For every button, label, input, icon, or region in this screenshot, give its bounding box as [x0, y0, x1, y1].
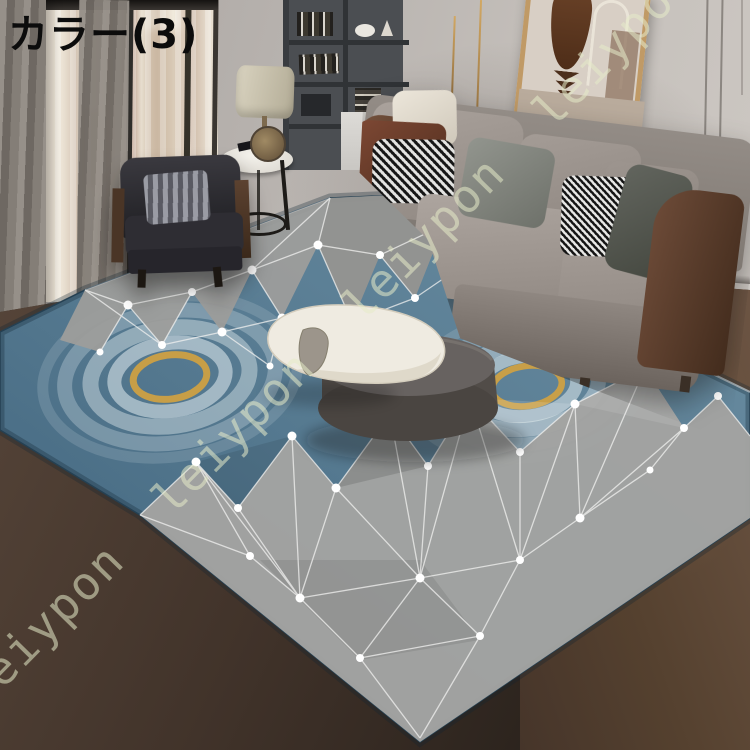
armchair	[110, 153, 265, 298]
sofa-leg	[679, 376, 691, 393]
product-photo: leiypon leiypon leiypon leiypon leiypon …	[0, 0, 750, 750]
armchair-frame	[111, 188, 124, 262]
armchair-leg	[137, 269, 146, 287]
pillow-gray	[456, 136, 557, 230]
striped-pillow	[143, 170, 211, 225]
color-variant-label: カラー(3)	[8, 2, 198, 60]
lamp-shade	[235, 65, 295, 119]
